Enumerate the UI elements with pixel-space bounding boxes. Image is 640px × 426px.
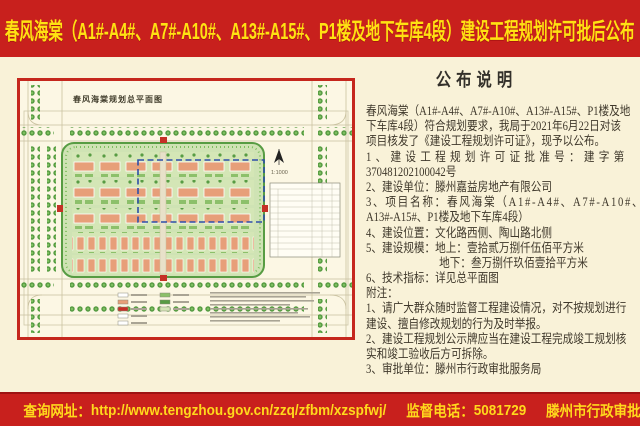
query-url: http://www.tengzhou.gov.cn/zzq/zfbm/xzsp… (91, 402, 386, 419)
phone-label: 监督电话： (406, 400, 474, 421)
notice-line: 项目核发了《建设工程规划许可证》，现予以公布。 (366, 134, 624, 149)
notice-line-note-header: 附注： (366, 286, 624, 301)
banner-title-bar: 春风海棠（A1#-A4#、A7#-A10#、A13#-A15#、P1楼及地下车库… (0, 0, 640, 57)
footer-content: 查询网址：http://www.tengzhou.gov.cn/zzq/zfbm… (0, 400, 640, 421)
notice-line-scale-below: 地下：叁万捌仟玖佰壹拾平方米 (366, 256, 624, 271)
notice-line-note1b: 建设、擅自修改规划的行为及时举报。 (366, 317, 624, 332)
notice-line-project: 3、项目名称：春风海棠（A1#-A4#、A7#-A10#、 (366, 195, 624, 210)
notice-line-note2: 2、建设工程规划公示牌应当在建设工程完成竣工规划核 (366, 332, 624, 347)
phone-number: 5081729 (474, 402, 527, 419)
site-plan-panel: 1:1000 春风海棠规划总平面图 (17, 78, 355, 340)
page-title: 春风海棠（A1#-A4#、A7#-A10#、A13#-A15#、P1楼及地下车库… (5, 12, 635, 46)
site-area (62, 143, 264, 277)
map-scale-label: 1:1000 (271, 170, 288, 176)
issuer-label: 滕州市行政审批服务局监制 (546, 400, 640, 421)
notice-line-indicators: 6、技术指标：详见总平面图 (366, 271, 624, 286)
notice-line: 下车库4段）符合规划要求，我局于2021年6月22日对该 (366, 119, 624, 134)
notice-line-note1: 1、请广大群众随时监督工程建设情况，对不按规划进行 (366, 301, 624, 316)
notice-column: 公布说明 春风海棠（A1#-A4#、A7#-A10#、A13#-A15#、P1楼… (366, 66, 624, 377)
map-title: 春风海棠规划总平面图 (73, 94, 163, 105)
notice-line-builder: 2、建设单位：滕州嘉益房地产有限公司 (366, 180, 624, 195)
notice-heading: 公布说明 (366, 66, 587, 92)
notice-line-location: 4、建设位置：文化路西侧、陶山路北侧 (366, 226, 624, 241)
notice-line-permit-no2: 370481202100042号 (366, 165, 624, 180)
notice-line-project2: A13#-A15#、P1楼及地下车库4段） (366, 210, 624, 225)
indicators-table (270, 183, 340, 257)
site-plan-drawing: 1:1000 (20, 81, 352, 337)
notice-line-scale-above: 5、建设规模：地上：壹拾贰万捌仟伍佰平方米 (366, 241, 624, 256)
footer-bar: 查询网址：http://www.tengzhou.gov.cn/zzq/zfbm… (0, 392, 640, 426)
notice-line-permit-no: 1、建设工程规划许可证批准号：建字第 (366, 150, 624, 165)
query-url-label: 查询网址： (23, 400, 91, 421)
notice-line-note2b: 实和竣工验收后方可拆除。 (366, 347, 624, 362)
notice-line: 春风海棠（A1#-A4#、A7#-A10#、A13#-A15#、P1楼及地 (366, 104, 624, 119)
notice-line-approver: 3、审批单位：滕州市行政审批服务局 (366, 362, 624, 377)
